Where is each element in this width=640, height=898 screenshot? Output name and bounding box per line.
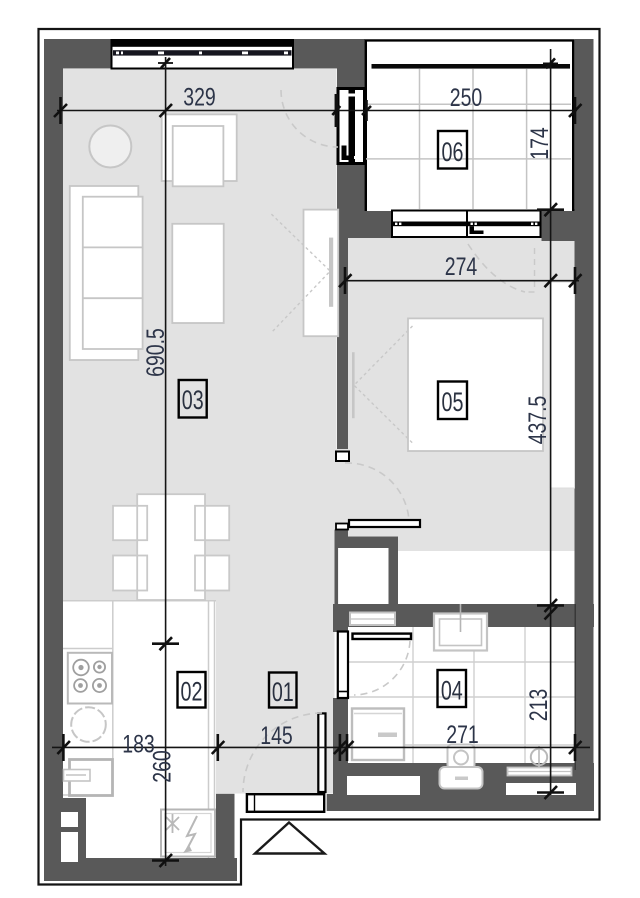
svg-text:250: 250 <box>450 84 483 112</box>
svg-text:213: 213 <box>525 689 553 722</box>
svg-text:271: 271 <box>446 721 479 749</box>
svg-text:05: 05 <box>442 388 464 418</box>
svg-text:690.5: 690.5 <box>142 328 170 377</box>
svg-text:145: 145 <box>260 722 293 750</box>
svg-text:329: 329 <box>183 83 216 111</box>
svg-text:437.5: 437.5 <box>524 396 552 445</box>
svg-text:06: 06 <box>442 138 464 168</box>
svg-text:01: 01 <box>272 678 294 708</box>
svg-text:174: 174 <box>526 127 554 160</box>
svg-text:03: 03 <box>182 386 204 416</box>
svg-text:02: 02 <box>181 678 203 708</box>
svg-text:274: 274 <box>445 253 478 281</box>
svg-text:04: 04 <box>441 677 463 707</box>
svg-text:260: 260 <box>148 750 176 783</box>
